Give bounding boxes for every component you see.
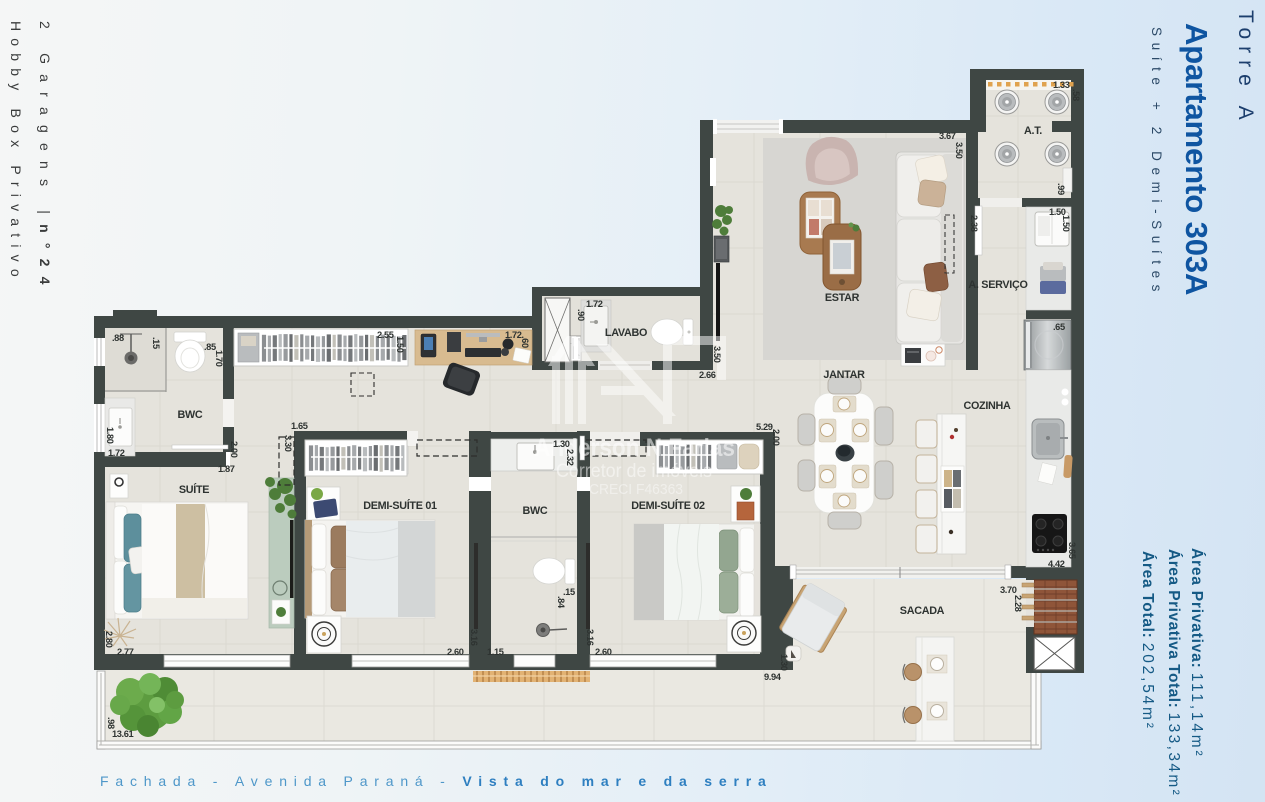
- svg-text:.88: .88: [112, 333, 124, 343]
- svg-text:9.94: 9.94: [764, 672, 782, 682]
- svg-text:DEMI-SUÍTE 01: DEMI-SUÍTE 01: [363, 499, 437, 512]
- svg-text:1.72: 1.72: [108, 448, 125, 458]
- svg-text:3.50: 3.50: [712, 346, 722, 363]
- svg-text:3.67: 3.67: [939, 131, 956, 141]
- svg-text:3.30: 3.30: [283, 435, 293, 452]
- svg-text:.60: .60: [520, 336, 530, 348]
- svg-text:3.70: 3.70: [1000, 585, 1017, 595]
- svg-text:.84: .84: [556, 596, 566, 609]
- svg-text:1.30: 1.30: [553, 439, 570, 449]
- svg-text:.90: .90: [576, 309, 586, 321]
- svg-text:LAVABO: LAVABO: [605, 327, 647, 339]
- svg-text:4.42: 4.42: [1048, 559, 1065, 569]
- svg-text:2.38: 2.38: [969, 215, 979, 232]
- svg-text:2.60: 2.60: [447, 647, 464, 657]
- svg-text:2.55: 2.55: [377, 330, 394, 340]
- svg-text:.58: .58: [1071, 89, 1081, 101]
- svg-text:1.33: 1.33: [1053, 80, 1070, 90]
- svg-text:2.66: 2.66: [699, 370, 716, 380]
- svg-text:2.60: 2.60: [595, 647, 612, 657]
- svg-text:1.72: 1.72: [505, 330, 522, 340]
- svg-text:A. SERVIÇO: A. SERVIÇO: [968, 279, 1027, 291]
- svg-text:1.80: 1.80: [105, 427, 115, 444]
- svg-text:CRECI F46363: CRECI F46363: [589, 481, 683, 498]
- svg-text:3.16: 3.16: [585, 629, 595, 646]
- svg-text:2.77: 2.77: [117, 647, 134, 657]
- svg-text:1.72: 1.72: [586, 299, 603, 309]
- svg-text:2.80: 2.80: [104, 631, 114, 648]
- svg-text:3.50: 3.50: [954, 142, 964, 159]
- svg-text:2.28: 2.28: [1013, 595, 1023, 612]
- svg-text:.99: .99: [1056, 183, 1066, 195]
- svg-text:DEMI-SUÍTE 02: DEMI-SUÍTE 02: [631, 499, 705, 512]
- svg-text:3.65: 3.65: [1067, 542, 1077, 559]
- svg-text:1.30: 1.30: [779, 654, 789, 671]
- svg-text:1.87: 1.87: [218, 464, 235, 474]
- svg-text:BWC: BWC: [523, 505, 548, 517]
- svg-text:.15: .15: [151, 337, 161, 349]
- svg-text:1.15: 1.15: [487, 647, 504, 657]
- svg-text:1.70: 1.70: [214, 350, 224, 367]
- svg-text:SACADA: SACADA: [900, 605, 945, 617]
- svg-text:3.16: 3.16: [469, 629, 479, 646]
- svg-text:2.00: 2.00: [229, 441, 239, 458]
- svg-text:.65: .65: [1053, 322, 1065, 332]
- svg-text:13.61: 13.61: [112, 729, 133, 739]
- svg-text:COZINHA: COZINHA: [963, 400, 1011, 412]
- svg-text:JANTAR: JANTAR: [823, 369, 865, 381]
- svg-text:Corretor de imóveis: Corretor de imóveis: [556, 461, 712, 482]
- svg-text:1.50: 1.50: [395, 336, 405, 353]
- svg-text:1.50: 1.50: [1061, 215, 1071, 232]
- svg-text:SUÍTE: SUÍTE: [179, 483, 209, 496]
- svg-text:ESTAR: ESTAR: [825, 292, 860, 304]
- svg-text:BWC: BWC: [178, 409, 203, 421]
- svg-text:.98: .98: [106, 717, 116, 729]
- svg-text:5.29: 5.29: [756, 422, 773, 432]
- svg-text:A.T.: A.T.: [1024, 125, 1042, 137]
- svg-text:1.65: 1.65: [291, 421, 308, 431]
- svg-text:2.32: 2.32: [565, 449, 575, 466]
- svg-text:2.00: 2.00: [771, 429, 781, 446]
